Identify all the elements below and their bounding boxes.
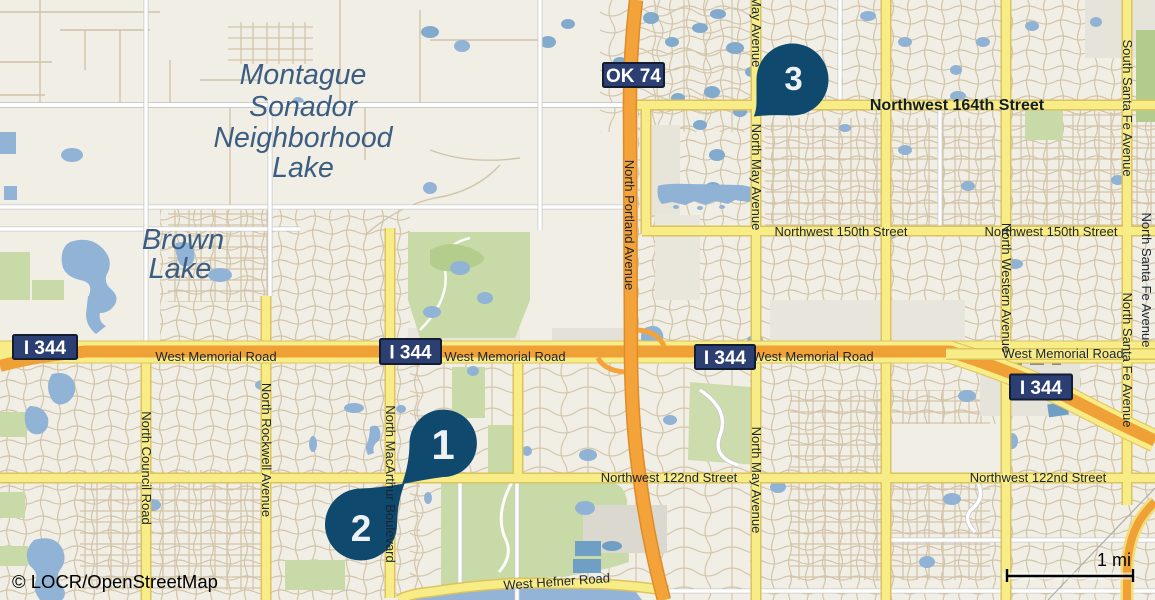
svg-text:I 344: I 344: [704, 348, 747, 369]
svg-text:North May Avenue: North May Avenue: [749, 0, 764, 67]
svg-text:North Santa Fe Avenue: North Santa Fe Avenue: [1139, 213, 1154, 348]
svg-text:1: 1: [431, 421, 454, 468]
svg-text:West Memorial Road: West Memorial Road: [444, 349, 565, 364]
svg-text:2: 2: [351, 508, 372, 549]
svg-text:Lake: Lake: [149, 253, 212, 285]
svg-text:© LOCR/OpenStreetMap: © LOCR/OpenStreetMap: [12, 571, 218, 592]
svg-text:1 mi: 1 mi: [1097, 550, 1131, 570]
svg-text:I 344: I 344: [389, 343, 432, 364]
svg-text:I 344: I 344: [24, 338, 67, 359]
svg-text:Brown: Brown: [142, 224, 224, 256]
svg-text:Lake: Lake: [272, 152, 334, 184]
svg-text:North Western Avenue: North Western Avenue: [999, 223, 1014, 353]
svg-text:West Memorial Road: West Memorial Road: [1002, 346, 1123, 361]
svg-text:Northwest 122nd Street: Northwest 122nd Street: [970, 470, 1107, 485]
svg-text:I 344: I 344: [1020, 378, 1063, 399]
svg-text:North May Avenue: North May Avenue: [749, 124, 764, 231]
svg-text:Northwest 150th Street: Northwest 150th Street: [775, 224, 908, 239]
svg-text:Northwest 164th Street: Northwest 164th Street: [870, 97, 1045, 114]
svg-text:Northwest 122nd Street: Northwest 122nd Street: [601, 470, 738, 485]
svg-text:West Memorial Road: West Memorial Road: [752, 349, 873, 364]
svg-text:Sonador: Sonador: [249, 91, 358, 123]
svg-text:3: 3: [784, 60, 802, 97]
svg-text:North Portland Avenue: North Portland Avenue: [622, 160, 637, 291]
svg-text:Neighborhood: Neighborhood: [213, 122, 393, 154]
svg-text:West Memorial Road: West Memorial Road: [155, 349, 276, 364]
svg-text:OK 74: OK 74: [606, 66, 661, 87]
svg-text:North Council Road: North Council Road: [139, 411, 154, 524]
svg-text:Montague: Montague: [240, 59, 367, 91]
svg-text:North MacArthur Boulevard: North MacArthur Boulevard: [383, 405, 398, 563]
svg-text:North May Avenue: North May Avenue: [749, 427, 764, 534]
svg-text:South Santa Fe Avenue: South Santa Fe Avenue: [1120, 39, 1135, 176]
svg-text:North Santa Fe Avenue: North Santa Fe Avenue: [1120, 293, 1135, 428]
svg-text:North Rockwell Avenue: North Rockwell Avenue: [259, 383, 274, 517]
